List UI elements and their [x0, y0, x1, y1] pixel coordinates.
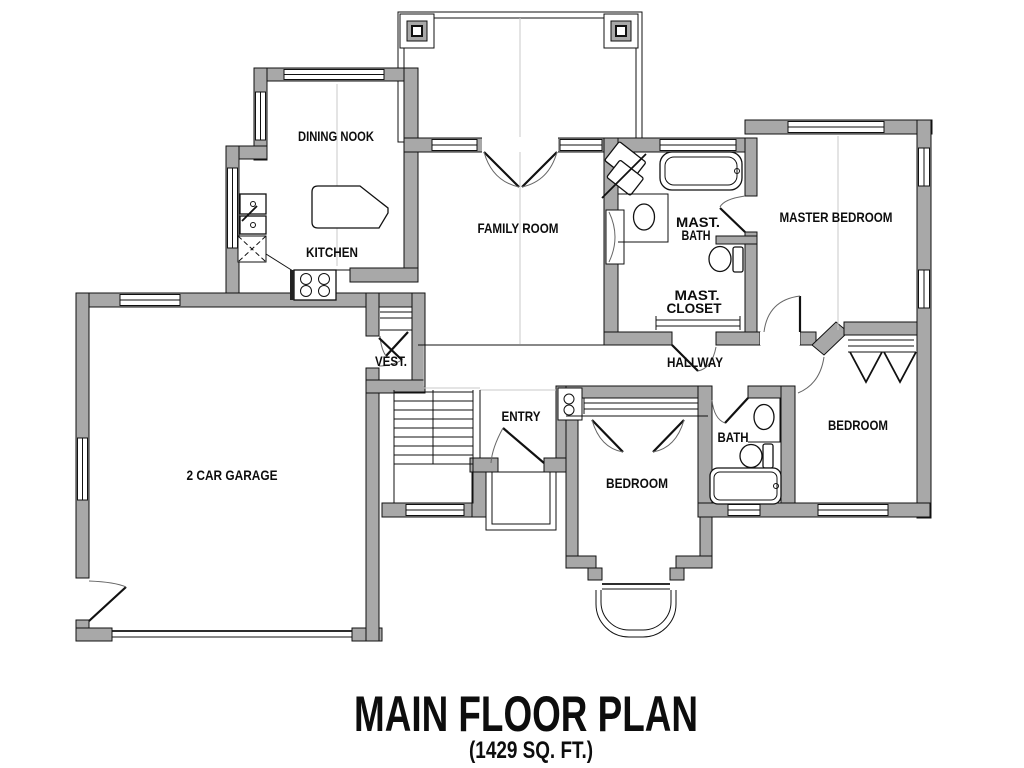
wall-segment — [366, 380, 425, 393]
door-leaf — [89, 587, 126, 621]
door-swing — [712, 400, 725, 423]
wall-segment — [412, 293, 425, 393]
door-swing — [798, 357, 824, 393]
wall-segment — [781, 386, 795, 517]
label-bedroom-right: BEDROOM — [828, 417, 888, 433]
door-swing — [720, 196, 745, 207]
label-hallway: HALLWAY — [667, 354, 724, 370]
label-entry: ENTRY — [502, 408, 542, 424]
door-leaf — [653, 420, 684, 452]
toilet-tank — [733, 247, 743, 272]
label-master-bath-2: BATH — [682, 227, 711, 243]
stair-landing — [394, 464, 473, 503]
french-door-opening — [482, 137, 558, 153]
wall-segment — [76, 628, 112, 641]
wall-segment — [716, 332, 760, 345]
post-core — [412, 26, 422, 36]
kitchen-island — [312, 186, 388, 228]
wall-segment — [745, 138, 757, 196]
label-garage: 2 CAR GARAGE — [187, 467, 278, 483]
label-kitchen: KITCHEN — [306, 244, 358, 260]
wall-segment — [470, 458, 498, 472]
porch-inner — [492, 472, 550, 524]
wall-segment — [566, 556, 596, 568]
wall-segment — [366, 293, 379, 336]
door-leaf — [503, 428, 544, 463]
wall-segment — [588, 568, 602, 580]
family-room-doors — [484, 152, 624, 264]
stove-control — [290, 270, 294, 300]
door-leaf — [592, 420, 623, 452]
title-subtitle: (1429 SQ. FT.) — [469, 737, 593, 764]
entry-features — [486, 428, 556, 530]
wall-segment — [745, 232, 757, 345]
wall-segment — [350, 268, 418, 282]
wall-segment — [748, 386, 781, 398]
bathtub — [710, 468, 781, 504]
center-bedroom-features — [558, 388, 708, 637]
door-swing — [764, 296, 800, 332]
wall-segment — [676, 556, 712, 568]
bifold-door — [850, 352, 882, 382]
wall-segment — [844, 322, 917, 335]
label-bedroom-center: BEDROOM — [606, 475, 668, 491]
post-core — [616, 26, 626, 36]
vanity-sink — [754, 405, 774, 430]
garage-door — [112, 631, 352, 637]
toilet — [740, 445, 762, 468]
floor-plan-page: DINING NOOK KITCHEN FAMILY ROOM MAST. BA… — [0, 0, 1024, 768]
master-bedroom-door — [764, 296, 800, 332]
master-bedroom-door-opening — [760, 332, 800, 345]
deck-post-left — [400, 14, 434, 48]
staircase — [394, 390, 473, 503]
counter-corner — [266, 254, 293, 271]
wall-segment — [716, 236, 757, 244]
label-master-closet-2: CLOSET — [667, 300, 722, 316]
wall-segment-angled — [812, 322, 848, 355]
label-dining-nook: DINING NOOK — [298, 128, 374, 144]
door-leaf — [484, 152, 519, 187]
hall-bath-fixtures — [710, 398, 781, 504]
wall-segment — [404, 68, 418, 282]
door-leaf — [522, 152, 557, 187]
deck — [398, 12, 642, 142]
wall-segment — [366, 368, 379, 641]
kitchen-fixtures — [238, 186, 388, 300]
toilet-tank — [763, 444, 773, 468]
floor-plan-svg: DINING NOOK KITCHEN FAMILY ROOM MAST. BA… — [0, 0, 1024, 768]
door-leaf — [725, 398, 748, 423]
bifold-door — [884, 352, 916, 382]
label-family-room: FAMILY ROOM — [478, 220, 559, 236]
garage-side-door — [89, 581, 126, 621]
wall-segment — [670, 568, 684, 580]
wall-segment — [604, 332, 672, 345]
bow-window-inner — [601, 590, 671, 630]
bathtub — [660, 152, 742, 190]
walls — [76, 68, 932, 641]
label-bath: BATH — [718, 429, 749, 445]
stove — [294, 270, 336, 300]
toilet — [709, 247, 731, 272]
door-leaf — [720, 208, 745, 232]
wall-segment — [566, 416, 578, 568]
plan-title: MAIN FLOOR PLAN (1429 SQ. FT.) — [354, 686, 698, 764]
porch-outline — [486, 472, 556, 530]
label-master-bedroom: MASTER BEDROOM — [780, 209, 893, 225]
title-main: MAIN FLOOR PLAN — [354, 686, 698, 742]
label-vestibule: VEST. — [375, 353, 407, 369]
door-swing — [89, 581, 126, 587]
wall-segment — [76, 293, 89, 578]
deck-post-right — [604, 14, 638, 48]
vanity-sink — [634, 204, 655, 230]
